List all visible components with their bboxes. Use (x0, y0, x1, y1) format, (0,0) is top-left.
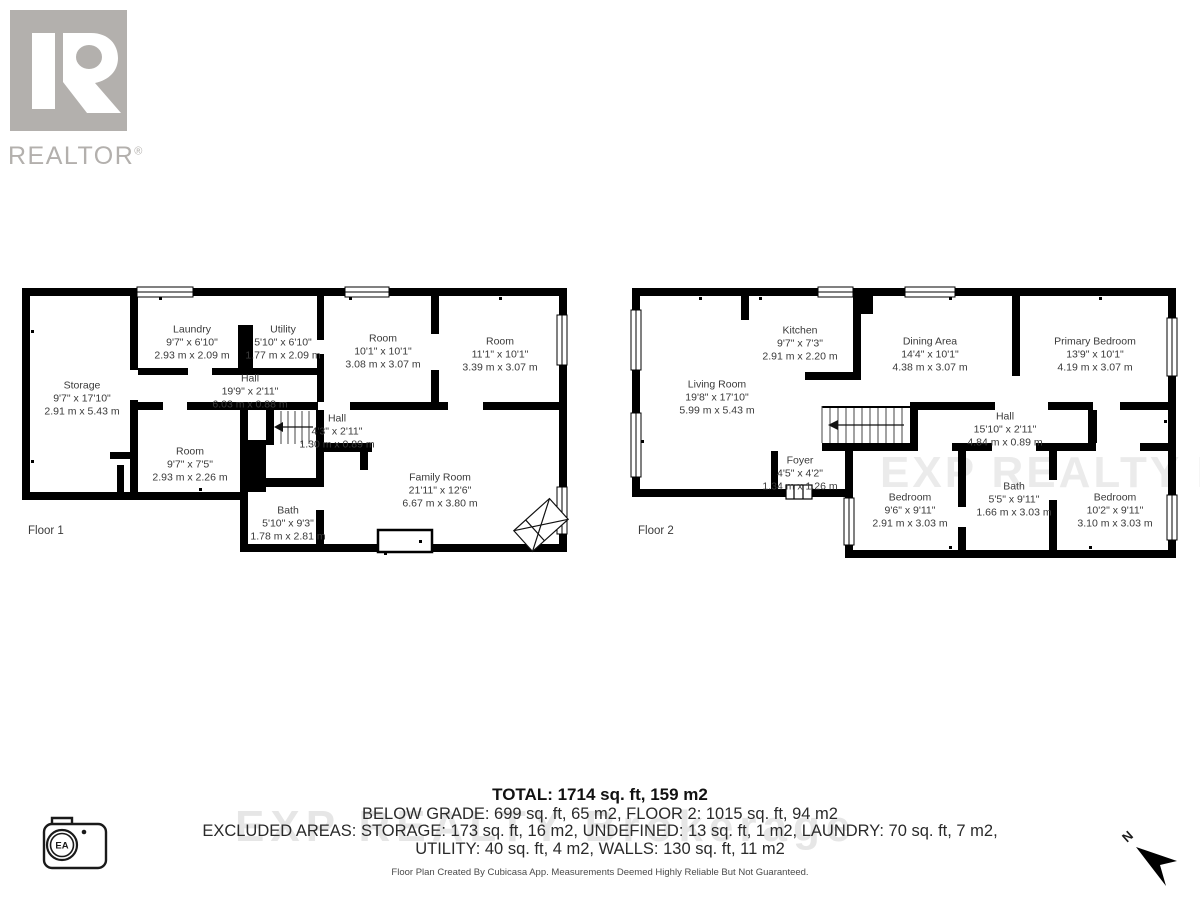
floor-plan-page: EXP REALTY Brokerage EXP REALTY Brokerag… (0, 0, 1200, 900)
summary-below-grade: BELOW GRADE: 699 sq. ft, 65 m2, FLOOR 2:… (100, 806, 1100, 824)
camera-badge-label: EA (55, 841, 68, 852)
room-dim-metric: 1.30 m x 0.89 m (299, 439, 374, 452)
summary-total: TOTAL: 1714 sq. ft, 159 m2 (100, 786, 1100, 804)
room-label-laundry: Laundry 9'7" x 6'10" 2.93 m x 2.09 m (154, 324, 229, 363)
room-name: Hall (212, 373, 287, 386)
room-label-room-c: Room 9'7" x 7'5" 2.93 m x 2.26 m (152, 446, 227, 485)
room-dim-imperial: 14'4" x 10'1" (892, 349, 967, 362)
room-dim-imperial: 10'2" x 9'11" (1077, 505, 1152, 518)
room-name: Family Room (402, 472, 477, 485)
camera-badge: EA (38, 808, 118, 879)
room-dim-imperial: 9'6" x 9'11" (872, 505, 947, 518)
room-label-bedroom-right: Bedroom 10'2" x 9'11" 3.10 m x 3.03 m (1077, 492, 1152, 531)
room-label-hall-f1: Hall 19'9" x 2'11" 6.03 m x 0.88 m (212, 373, 287, 412)
room-dim-imperial: 11'1" x 10'1" (462, 349, 537, 362)
realtor-logo-text: REALTOR® (8, 142, 142, 171)
room-name: Living Room (679, 379, 754, 392)
room-label-primary-bedroom: Primary Bedroom 13'9" x 10'1" 4.19 m x 3… (1054, 336, 1136, 375)
room-name: Bath (250, 505, 325, 518)
room-label-hall-f2: Hall 15'10" x 2'11" 4.84 m x 0.89 m (967, 411, 1042, 450)
room-dim-metric: 3.08 m x 3.07 m (345, 359, 420, 372)
registered-mark: ® (134, 146, 142, 158)
room-dim-metric: 4.38 m x 3.07 m (892, 362, 967, 375)
room-dim-metric: 3.39 m x 3.07 m (462, 362, 537, 375)
room-name: Dining Area (892, 336, 967, 349)
room-label-living-room: Living Room 19'8" x 17'10" 5.99 m x 5.43… (679, 379, 754, 418)
room-dim-metric: 1.77 m x 2.09 m (245, 350, 320, 363)
room-label-foyer: Foyer 4'5" x 4'2" 1.34 m x 1.26 m (762, 455, 837, 494)
room-dim-metric: 2.93 m x 2.09 m (154, 350, 229, 363)
realtor-logo-icon (5, 5, 135, 135)
room-name: Room (462, 336, 537, 349)
summary-excluded-2: UTILITY: 40 sq. ft, 4 m2, WALLS: 130 sq.… (100, 841, 1100, 859)
room-name: Hall (299, 413, 374, 426)
room-name: Room (152, 446, 227, 459)
room-dim-metric: 2.91 m x 2.20 m (762, 351, 837, 364)
area-summary: TOTAL: 1714 sq. ft, 159 m2 BELOW GRADE: … (100, 786, 1100, 858)
room-label-bedroom-left: Bedroom 9'6" x 9'11" 2.91 m x 3.03 m (872, 492, 947, 531)
room-dim-metric: 4.19 m x 3.07 m (1054, 362, 1136, 375)
room-dim-imperial: 5'5" x 9'11" (976, 494, 1051, 507)
realtor-wordmark: REALTOR (8, 142, 134, 170)
camera-icon: EA (38, 808, 118, 874)
room-name: Foyer (762, 455, 837, 468)
room-dim-imperial: 9'7" x 7'5" (152, 459, 227, 472)
room-name: Bedroom (1077, 492, 1152, 505)
room-label-kitchen: Kitchen 9'7" x 7'3" 2.91 m x 2.20 m (762, 325, 837, 364)
room-dim-imperial: 9'7" x 7'3" (762, 338, 837, 351)
room-label-family-room: Family Room 21'11" x 12'6" 6.67 m x 3.80… (402, 472, 477, 511)
north-arrow-icon: N (1112, 822, 1197, 897)
room-dim-imperial: 4'3" x 2'11" (299, 426, 374, 439)
room-dim-metric: 1.66 m x 3.03 m (976, 507, 1051, 520)
floor1-label: Floor 1 (28, 525, 64, 537)
room-dim-imperial: 9'7" x 17'10" (44, 393, 119, 406)
disclaimer-text: Floor Plan Created By Cubicasa App. Meas… (100, 867, 1100, 878)
room-dim-metric: 2.91 m x 5.43 m (44, 406, 119, 419)
room-dim-imperial: 13'9" x 10'1" (1054, 349, 1136, 362)
realtor-logo: REALTOR® (5, 5, 142, 171)
room-dim-metric: 4.84 m x 0.89 m (967, 437, 1042, 450)
room-dim-imperial: 15'10" x 2'11" (967, 424, 1042, 437)
room-dim-imperial: 5'10" x 9'3" (250, 518, 325, 531)
room-name: Bath (976, 481, 1051, 494)
room-dim-metric: 1.78 m x 2.81 m (250, 531, 325, 544)
room-dim-metric: 2.91 m x 3.03 m (872, 518, 947, 531)
floor2-label: Floor 2 (638, 525, 674, 537)
north-label: N (1119, 828, 1136, 845)
room-dim-imperial: 19'8" x 17'10" (679, 392, 754, 405)
room-name: Storage (44, 380, 119, 393)
floor1-stairs-arrow (274, 422, 283, 432)
north-indicator: N (1112, 822, 1197, 902)
room-dim-metric: 6.03 m x 0.88 m (212, 399, 287, 412)
floor1-hearth (378, 530, 432, 552)
room-dim-imperial: 9'7" x 6'10" (154, 337, 229, 350)
room-dim-metric: 5.99 m x 5.43 m (679, 405, 754, 418)
room-name: Hall (967, 411, 1042, 424)
room-dim-imperial: 5'10" x 6'10" (245, 337, 320, 350)
room-label-room-b: Room 11'1" x 10'1" 3.39 m x 3.07 m (462, 336, 537, 375)
room-dim-imperial: 4'5" x 4'2" (762, 468, 837, 481)
room-name: Primary Bedroom (1054, 336, 1136, 349)
room-dim-metric: 3.10 m x 3.03 m (1077, 518, 1152, 531)
summary-excluded-1: EXCLUDED AREAS: STORAGE: 173 sq. ft, 16 … (100, 823, 1100, 841)
room-label-bath-f2: Bath 5'5" x 9'11" 1.66 m x 3.03 m (976, 481, 1051, 520)
room-name: Bedroom (872, 492, 947, 505)
room-label-hall-small: Hall 4'3" x 2'11" 1.30 m x 0.89 m (299, 413, 374, 452)
room-dim-metric: 1.34 m x 1.26 m (762, 481, 837, 494)
room-dim-metric: 2.93 m x 2.26 m (152, 472, 227, 485)
room-label-dining-area: Dining Area 14'4" x 10'1" 4.38 m x 3.07 … (892, 336, 967, 375)
room-name: Room (345, 333, 420, 346)
room-label-utility: Utility 5'10" x 6'10" 1.77 m x 2.09 m (245, 324, 320, 363)
room-name: Utility (245, 324, 320, 337)
room-dim-imperial: 19'9" x 2'11" (212, 386, 287, 399)
room-label-storage: Storage 9'7" x 17'10" 2.91 m x 5.43 m (44, 380, 119, 419)
room-dim-imperial: 21'11" x 12'6" (402, 485, 477, 498)
room-dim-metric: 6.67 m x 3.80 m (402, 498, 477, 511)
room-label-bath-f1: Bath 5'10" x 9'3" 1.78 m x 2.81 m (250, 505, 325, 544)
room-name: Laundry (154, 324, 229, 337)
room-dim-imperial: 10'1" x 10'1" (345, 346, 420, 359)
room-name: Kitchen (762, 325, 837, 338)
room-label-room-a: Room 10'1" x 10'1" 3.08 m x 3.07 m (345, 333, 420, 372)
